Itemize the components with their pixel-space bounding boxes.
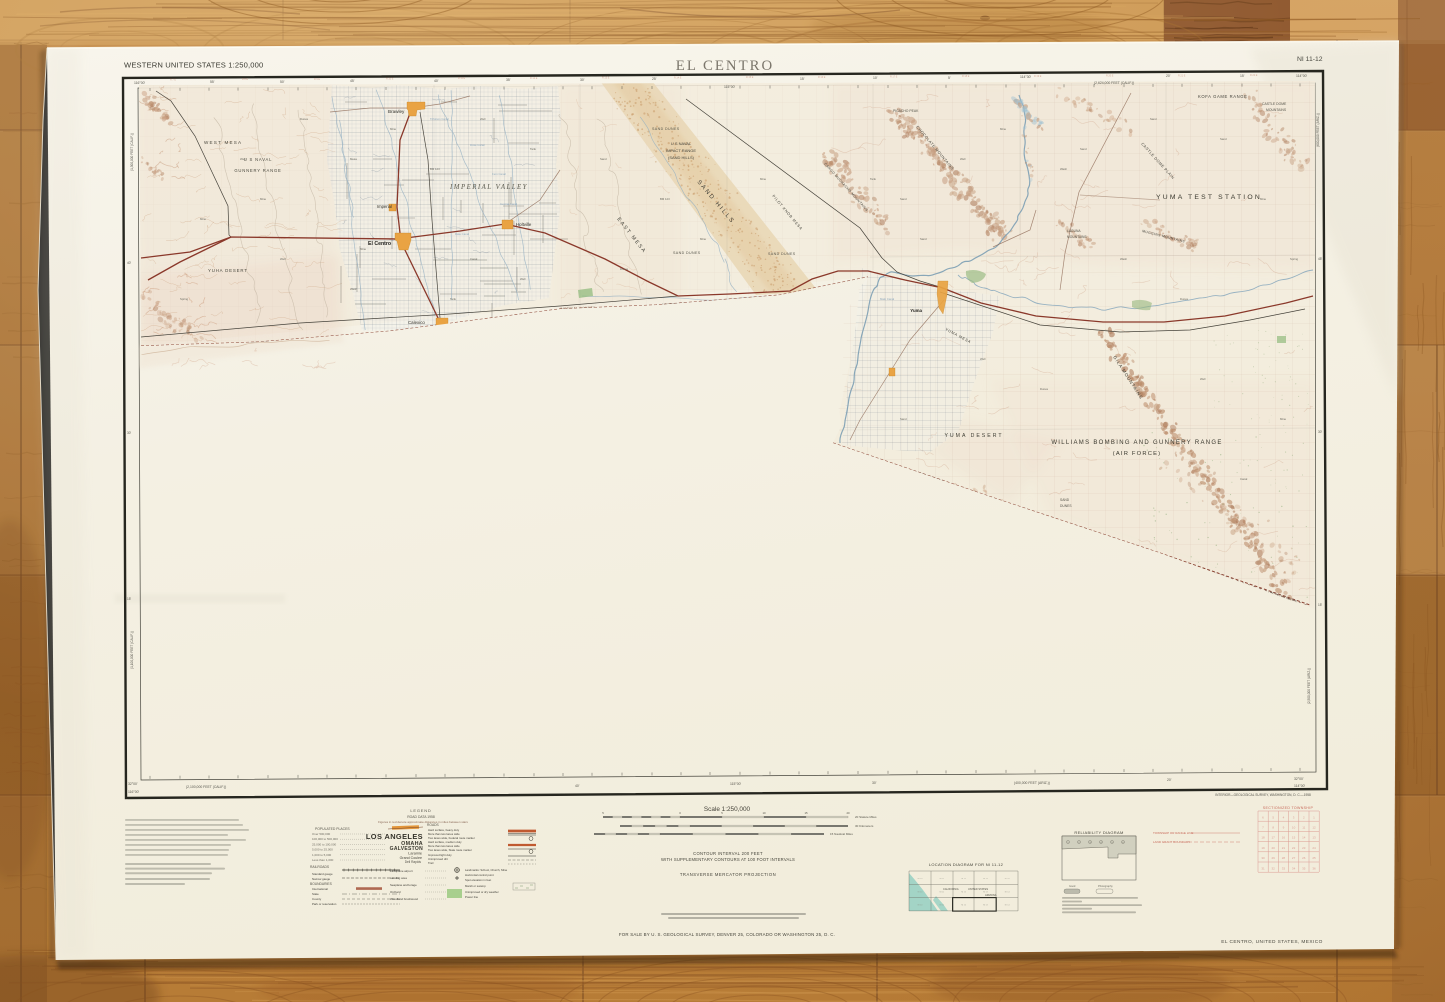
svg-text:SAND DUNES: SAND DUNES: [673, 251, 701, 255]
svg-text:KOFA GAME RANGE: KOFA GAME RANGE: [1198, 94, 1248, 99]
svg-text:15': 15': [1240, 74, 1245, 78]
svg-text:Dunes: Dunes: [620, 267, 629, 271]
svg-text:Good: Good: [1069, 884, 1076, 888]
svg-text:SAND DUNES: SAND DUNES: [768, 252, 796, 256]
svg-text:Spring: Spring: [180, 297, 189, 301]
svg-text:20': 20': [1166, 74, 1171, 78]
svg-text:Mine: Mine: [760, 177, 767, 181]
svg-text:WEST MESA: WEST MESA: [204, 140, 242, 145]
svg-text:Mine: Mine: [700, 237, 707, 241]
svg-text:Unimproved or dry weather: Unimproved or dry weather: [465, 890, 499, 894]
svg-text:Central Canal: Central Canal: [500, 202, 517, 206]
svg-text:BM 123: BM 123: [660, 197, 670, 201]
svg-text:5': 5': [948, 76, 951, 80]
svg-text:INTERIOR—GEOLOGICAL SURVEY, WA: INTERIOR—GEOLOGICAL SURVEY, WASHINGTON, …: [1215, 793, 1311, 797]
svg-text:County: County: [312, 897, 322, 901]
svg-text:POPULATED PLACES: POPULATED PLACES: [315, 827, 350, 831]
svg-text:Brawley: Brawley: [388, 109, 405, 114]
svg-text:115°00': 115°00': [730, 782, 742, 786]
svg-text:IMPERIAL VALLEY: IMPERIAL VALLEY: [449, 184, 528, 191]
svg-text:R 8 E: R 8 E: [242, 78, 248, 81]
svg-text:U S NAVAL: U S NAVAL: [671, 141, 692, 146]
svg-text:LOS ANGELES: LOS ANGELES: [366, 832, 423, 841]
svg-text:EL CENTRO, UNITED STATES, MEXI: EL CENTRO, UNITED STATES, MEXICO: [1221, 939, 1322, 945]
svg-text:Less than 1,000: Less than 1,000: [312, 858, 334, 862]
svg-text:18: 18: [1261, 836, 1265, 840]
svg-text:Seaplane anchorage: Seaplane anchorage: [390, 883, 417, 887]
svg-text:CALIFORNIA: CALIFORNIA: [943, 887, 959, 891]
svg-text:RELIABILITY DIAGRAM: RELIABILITY DIAGRAM: [1074, 830, 1123, 835]
svg-text:Wash: Wash: [1120, 257, 1127, 261]
svg-text:Landing area: Landing area: [390, 876, 407, 880]
svg-text:BOUNDARIES: BOUNDARIES: [310, 882, 333, 886]
svg-text:45': 45': [1318, 257, 1323, 261]
svg-text:21: 21: [1282, 846, 1286, 850]
svg-text:Laramie: Laramie: [408, 852, 422, 856]
svg-text:R 22 E: R 22 E: [1250, 74, 1258, 77]
svg-text:R 18 E: R 18 E: [962, 75, 970, 78]
svg-text:Sand: Sand: [900, 197, 907, 201]
svg-text:R 17 E: R 17 E: [890, 76, 898, 79]
svg-text:29: 29: [1272, 856, 1276, 860]
svg-text:Well: Well: [280, 257, 286, 261]
svg-text:SAND: SAND: [1060, 498, 1070, 502]
svg-text:Mine: Mine: [1260, 197, 1267, 201]
svg-text:IMPACT RANGE: IMPACT RANGE: [666, 148, 696, 153]
svg-text:YUMA DESERT: YUMA DESERT: [944, 433, 1003, 439]
svg-text:Dunes: Dunes: [1180, 297, 1189, 301]
svg-text:20': 20': [1167, 778, 1172, 782]
svg-text:Canal: Canal: [470, 257, 478, 261]
svg-text:13: 13: [1312, 836, 1316, 840]
svg-text:WESTERN UNITED STATES 1:250,00: WESTERN UNITED STATES 1:250,000: [124, 61, 263, 70]
svg-text:Tank: Tank: [530, 147, 537, 151]
svg-text:Photography: Photography: [1098, 884, 1113, 888]
svg-text:Wash: Wash: [350, 287, 357, 291]
svg-text:16: 16: [1282, 836, 1286, 840]
svg-text:ROADS: ROADS: [427, 823, 440, 827]
svg-text:Horizontal control point: Horizontal control point: [465, 873, 494, 877]
svg-text:30': 30': [1318, 430, 1323, 434]
svg-text:1,000 to 5,000: 1,000 to 5,000: [312, 853, 332, 857]
svg-text:NI 11-12: NI 11-12: [1297, 56, 1323, 63]
svg-text:34: 34: [1292, 866, 1296, 870]
svg-text:Mine: Mine: [360, 247, 367, 251]
svg-text:Orchard: Orchard: [390, 890, 401, 894]
svg-text:116°00': 116°00': [134, 81, 146, 85]
svg-text:LAGUNA: LAGUNA: [1067, 229, 1081, 233]
svg-text:Woodland brushwood: Woodland brushwood: [390, 897, 418, 901]
svg-text:36: 36: [1312, 866, 1316, 870]
svg-text:(400,000 FEET (ARIZ.)): (400,000 FEET (ARIZ.)): [1014, 781, 1050, 785]
svg-text:Yuma: Yuma: [910, 308, 922, 313]
svg-text:International: International: [312, 887, 328, 891]
svg-text:Imperial: Imperial: [377, 204, 392, 209]
svg-text:Landmarks: School, Church, Min: Landmarks: School, Church, Mine: [465, 868, 508, 872]
svg-text:(AIR FORCE): (AIR FORCE): [1113, 451, 1162, 457]
svg-text:Well: Well: [1200, 377, 1206, 381]
svg-text:14: 14: [1302, 836, 1306, 840]
svg-text:(2,100,000 FEET (CALIF.)): (2,100,000 FEET (CALIF.)): [186, 785, 226, 789]
svg-text:TOWNSHIP OR RANGE LINE: TOWNSHIP OR RANGE LINE: [1153, 831, 1193, 835]
svg-text:17: 17: [1272, 836, 1276, 840]
svg-text:LAND GRANT BOUNDARY: LAND GRANT BOUNDARY: [1153, 840, 1190, 844]
svg-text:40': 40': [575, 784, 580, 788]
svg-text:30': 30': [127, 431, 132, 435]
svg-text:Mesa: Mesa: [350, 157, 357, 161]
svg-text:12: 12: [1312, 826, 1316, 830]
svg-text:EL CENTRO: EL CENTRO: [676, 58, 774, 74]
svg-text:Sand: Sand: [1080, 147, 1087, 151]
svg-text:WITH SUPPLEMENTARY CONTOURS AT: WITH SUPPLEMENTARY CONTOURS AT 100 FOOT …: [661, 857, 795, 862]
svg-text:15: 15: [1292, 836, 1296, 840]
svg-text:Tank: Tank: [870, 177, 877, 181]
svg-text:10': 10': [873, 76, 878, 80]
svg-text:CASTLE DOME: CASTLE DOME: [1262, 102, 1287, 106]
svg-text:32°00': 32°00': [128, 782, 138, 786]
svg-text:30': 30': [580, 78, 585, 82]
svg-text:5,000 to 25,000: 5,000 to 25,000: [312, 848, 333, 852]
svg-text:Well: Well: [960, 157, 966, 161]
svg-text:20: 20: [846, 811, 850, 815]
svg-text:15': 15': [800, 77, 805, 81]
svg-text:Dunes: Dunes: [300, 117, 309, 121]
svg-text:Trifolium Canal: Trifolium Canal: [430, 117, 449, 121]
svg-text:Date Canal: Date Canal: [455, 232, 469, 236]
svg-text:LOCATION DIAGRAM FOR NI 11-12: LOCATION DIAGRAM FOR NI 11-12: [929, 862, 1004, 867]
svg-text:Mine: Mine: [200, 217, 207, 221]
svg-text:15': 15': [1318, 603, 1323, 607]
svg-text:R 10 E: R 10 E: [386, 78, 394, 81]
svg-text:Holtville: Holtville: [516, 222, 532, 227]
svg-text:R 16 E: R 16 E: [818, 76, 826, 79]
svg-text:45': 45': [350, 79, 355, 83]
svg-text:Fern Canal: Fern Canal: [492, 172, 506, 176]
svg-text:Wash: Wash: [1060, 167, 1067, 171]
svg-text:Two lanes wide, State route ma: Two lanes wide, State route marker: [428, 848, 472, 852]
svg-text:(2,500,000 FEET (ARIZ.)): (2,500,000 FEET (ARIZ.)): [1307, 668, 1311, 704]
svg-text:11: 11: [1302, 826, 1305, 830]
svg-text:Sand: Sand: [1220, 137, 1227, 141]
svg-text:MOUNTAINS: MOUNTAINS: [1067, 235, 1087, 239]
svg-text:32: 32: [1272, 866, 1276, 870]
svg-text:ROAD DATA 1958: ROAD DATA 1958: [407, 815, 435, 819]
svg-text:Landplane airport: Landplane airport: [390, 869, 413, 873]
svg-text:RAILROADS: RAILROADS: [310, 865, 330, 869]
svg-text:ARIZONA: ARIZONA: [985, 893, 997, 897]
svg-text:32°00': 32°00': [1294, 777, 1304, 781]
svg-text:Dell Rapids: Dell Rapids: [405, 860, 422, 864]
svg-text:Park or reservation: Park or reservation: [312, 902, 337, 906]
svg-text:28: 28: [1282, 856, 1286, 860]
svg-text:Sand: Sand: [600, 157, 607, 161]
svg-text:Spring: Spring: [1290, 257, 1299, 261]
svg-text:114°00': 114°00': [1294, 784, 1306, 788]
svg-text:24: 24: [1312, 846, 1316, 850]
svg-text:Scale 1:250,000: Scale 1:250,000: [704, 806, 751, 813]
svg-text:15: 15: [804, 811, 808, 815]
svg-text:Marsh or swamp: Marsh or swamp: [465, 884, 486, 888]
svg-text:CONTOUR INTERVAL 200 FEET: CONTOUR INTERVAL 200 FEET: [693, 851, 763, 856]
svg-text:10: 10: [1292, 826, 1296, 830]
svg-text:Narrow gauge: Narrow gauge: [312, 877, 331, 881]
svg-text:Well: Well: [240, 157, 246, 161]
svg-text:Standard gauge: Standard gauge: [312, 872, 333, 876]
svg-text:116°00': 116°00': [128, 790, 140, 794]
svg-text:(SAND HILLS): (SAND HILLS): [668, 155, 695, 160]
svg-text:Well: Well: [480, 117, 486, 121]
svg-text:Rose Canal: Rose Canal: [470, 143, 485, 147]
svg-text:25: 25: [1312, 856, 1316, 860]
svg-text:R 13 E: R 13 E: [602, 77, 610, 80]
svg-text:Sand: Sand: [900, 417, 907, 421]
svg-text:R 21 E: R 21 E: [1178, 74, 1186, 77]
svg-text:R 11 E: R 11 E: [458, 77, 466, 80]
svg-text:WILLIAMS BOMBING AND GUNNERY R: WILLIAMS BOMBING AND GUNNERY RANGE: [1051, 440, 1222, 446]
svg-text:Mine: Mine: [260, 197, 267, 201]
svg-text:YUHA DESERT: YUHA DESERT: [208, 268, 248, 273]
svg-text:MOUNTAINS: MOUNTAINS: [1266, 108, 1287, 112]
svg-text:LEGEND: LEGEND: [410, 808, 431, 813]
svg-text:R 19 E: R 19 E: [1034, 75, 1042, 78]
svg-text:R 20 E: R 20 E: [1106, 75, 1114, 78]
svg-text:33: 33: [1282, 866, 1286, 870]
svg-text:Dunes: Dunes: [1040, 387, 1049, 391]
svg-text:114°00': 114°00': [1296, 74, 1308, 78]
svg-text:26: 26: [1302, 856, 1306, 860]
svg-text:Tank: Tank: [450, 297, 457, 301]
svg-text:Main Canal: Main Canal: [880, 297, 895, 301]
svg-text:BM 123: BM 123: [430, 167, 440, 171]
svg-text:25,000 to 100,000: 25,000 to 100,000: [312, 842, 337, 846]
svg-text:Figures in red denote approxim: Figures in red denote approximate distan…: [378, 820, 468, 824]
svg-text:Mine: Mine: [1280, 417, 1287, 421]
svg-text:35: 35: [1302, 866, 1306, 870]
svg-text:22: 22: [1292, 846, 1296, 850]
svg-text:Mine: Mine: [390, 127, 397, 131]
svg-text:15 Nautical Miles: 15 Nautical Miles: [830, 832, 853, 836]
svg-text:Trail: Trail: [428, 861, 434, 865]
svg-text:25': 25': [652, 77, 657, 81]
svg-text:Well: Well: [520, 277, 526, 281]
svg-text:State: State: [312, 892, 319, 896]
svg-text:40': 40': [434, 79, 439, 83]
svg-text:R 15 E: R 15 E: [746, 76, 754, 79]
svg-text:Over 500,000: Over 500,000: [312, 832, 331, 836]
svg-text:Canal: Canal: [1240, 477, 1248, 481]
svg-text:TRANSVERSE MERCATOR PROJECTION: TRANSVERSE MERCATOR PROJECTION: [680, 872, 776, 877]
svg-text:27: 27: [1292, 856, 1296, 860]
svg-text:114°30': 114°30': [1020, 75, 1032, 79]
svg-text:SECTIONIZED TOWNSHIP: SECTIONIZED TOWNSHIP: [1263, 806, 1314, 810]
svg-text:(2,624,000 FEET (CALIF.)): (2,624,000 FEET (CALIF.)): [1094, 81, 1134, 85]
svg-text:20: 20: [1272, 846, 1276, 850]
svg-text:Spot elevation in feet: Spot elevation in feet: [465, 878, 491, 882]
svg-text:40': 40': [127, 261, 132, 265]
svg-text:55': 55': [210, 80, 215, 84]
svg-text:31: 31: [1261, 866, 1265, 870]
svg-text:Mine: Mine: [1000, 127, 1007, 131]
svg-text:30: 30: [1261, 856, 1265, 860]
svg-text:R 12 E: R 12 E: [530, 77, 538, 80]
svg-text:Sand: Sand: [1150, 117, 1157, 121]
svg-text:10: 10: [762, 811, 766, 815]
svg-text:23: 23: [1302, 846, 1306, 850]
svg-text:DUNES: DUNES: [1060, 504, 1072, 508]
svg-text:19: 19: [1261, 846, 1265, 850]
svg-text:115°00': 115°00': [724, 85, 736, 89]
svg-text:50': 50': [280, 80, 285, 84]
svg-text:Well: Well: [980, 357, 986, 361]
svg-text:Calexico: Calexico: [408, 320, 425, 325]
svg-text:U S NAVAL: U S NAVAL: [244, 157, 272, 162]
svg-text:30': 30': [872, 781, 877, 785]
svg-text:35': 35': [506, 78, 511, 82]
svg-text:100,000 to 500,000: 100,000 to 500,000: [312, 837, 338, 841]
svg-text:(1,300,000 FEET (CALIF.)): (1,300,000 FEET (CALIF.)): [130, 133, 134, 171]
svg-text:SAND DUNES: SAND DUNES: [652, 127, 680, 131]
svg-text:Power line: Power line: [465, 895, 479, 899]
svg-text:R 9 E: R 9 E: [314, 78, 320, 81]
svg-text:FOR SALE BY U. S. GEOLOGICAL S: FOR SALE BY U. S. GEOLOGICAL SURVEY, DEN…: [619, 932, 835, 937]
svg-text:El Centro: El Centro: [368, 241, 391, 247]
svg-text:PICACHO PEAK: PICACHO PEAK: [893, 109, 919, 113]
svg-text:30 Kilometers: 30 Kilometers: [855, 824, 874, 828]
svg-text:YUMA TEST STATION: YUMA TEST STATION: [1156, 194, 1262, 201]
svg-text:R 14 E: R 14 E: [674, 76, 682, 79]
svg-text:15': 15': [127, 597, 132, 601]
svg-text:R 7 E: R 7 E: [170, 78, 176, 81]
svg-text:(1,100,000 FEET (CALIF.)): (1,100,000 FEET (CALIF.)): [130, 631, 134, 669]
svg-text:(600,000 FEET (ARIZ.)): (600,000 FEET (ARIZ.)): [1316, 113, 1320, 147]
svg-text:Sand: Sand: [920, 237, 927, 241]
svg-text:GUNNERY RANGE: GUNNERY RANGE: [234, 168, 281, 173]
svg-text:20 Statute Miles: 20 Statute Miles: [855, 815, 877, 819]
